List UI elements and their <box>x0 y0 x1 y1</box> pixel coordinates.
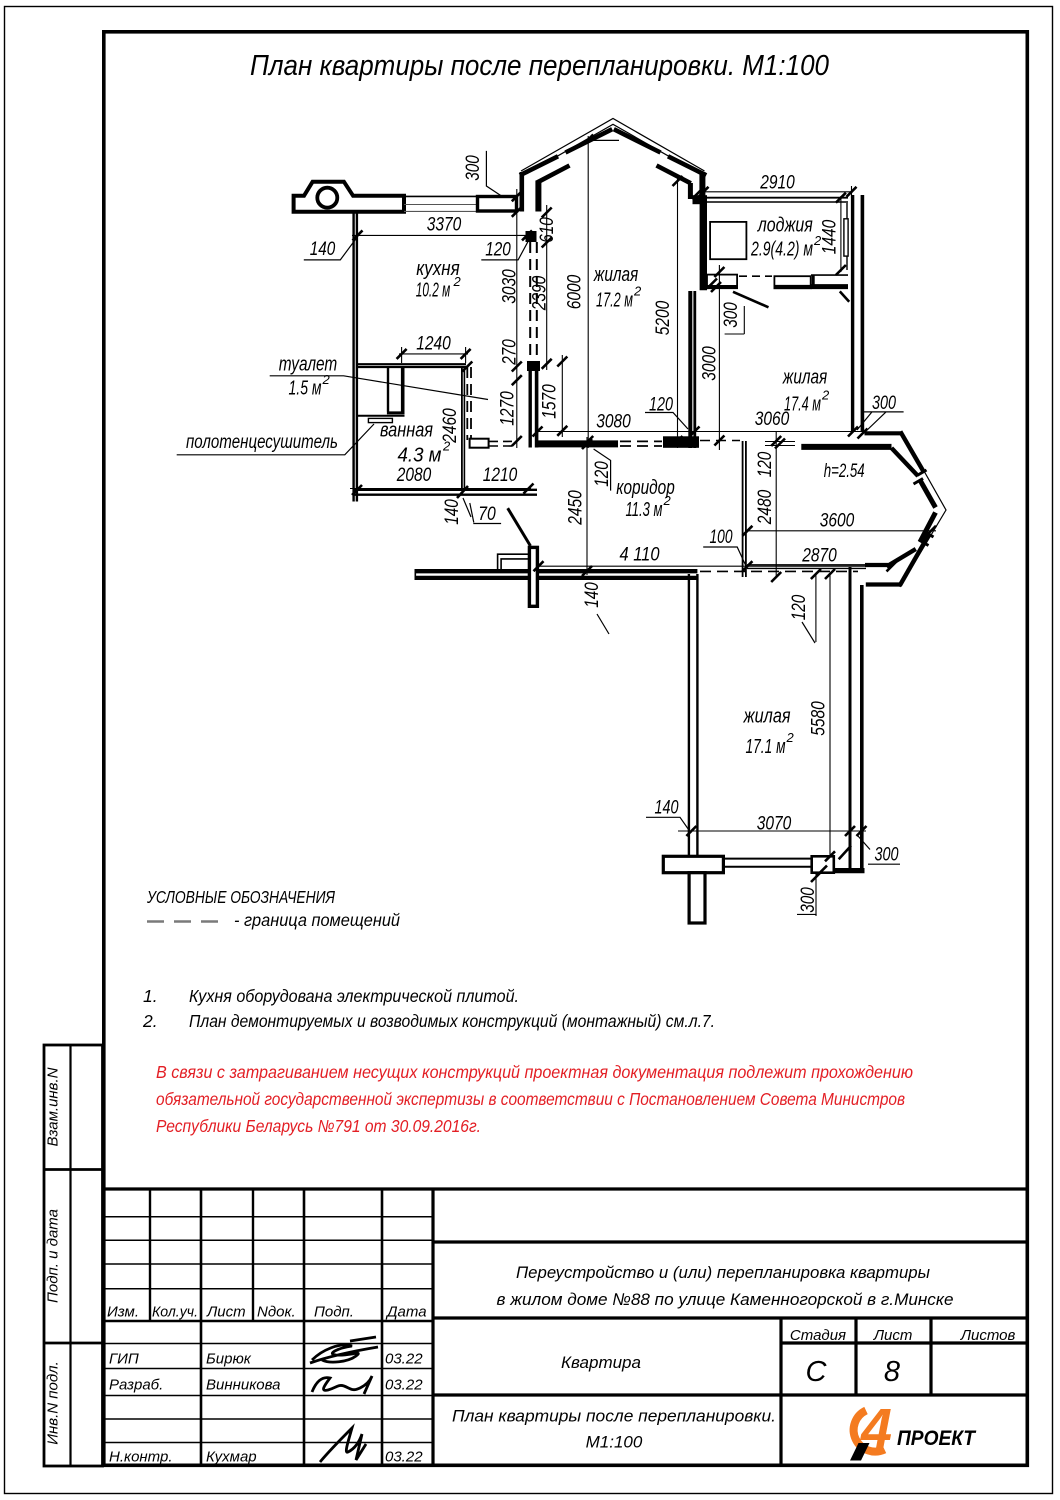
svg-text:2870: 2870 <box>801 546 837 567</box>
svg-text:Квартира: Квартира <box>561 1353 641 1372</box>
svg-text:6000: 6000 <box>565 274 586 309</box>
svg-text:жилая: жилая <box>782 367 828 389</box>
svg-text:С: С <box>806 1356 828 1388</box>
svg-text:140: 140 <box>655 798 679 819</box>
svg-text:1.: 1. <box>143 986 158 1006</box>
svg-text:17.2 м: 17.2 м <box>596 290 633 312</box>
svg-text:Изм.: Изм. <box>107 1304 139 1321</box>
svg-text:жилая: жилая <box>593 264 639 286</box>
svg-text:2: 2 <box>322 372 331 387</box>
svg-text:100: 100 <box>710 527 733 548</box>
svg-text:УСЛОВНЫЕ ОБОЗНАЧЕНИЯ: УСЛОВНЫЕ ОБОЗНАЧЕНИЯ <box>146 887 335 907</box>
svg-text:120: 120 <box>789 594 810 620</box>
svg-text:Лист: Лист <box>206 1304 246 1321</box>
svg-text:жилая: жилая <box>743 706 791 728</box>
svg-text:120: 120 <box>755 451 776 477</box>
svg-text:План квартиры после перепланир: План квартиры после перепланировки. М1:1… <box>250 50 829 82</box>
svg-text:2: 2 <box>663 493 672 508</box>
svg-text:2: 2 <box>442 439 451 454</box>
svg-text:300: 300 <box>875 845 899 866</box>
svg-text:В связи с затрагиванием несущи: В связи с затрагиванием несущих конструк… <box>156 1062 913 1082</box>
svg-text:17.4 м: 17.4 м <box>784 394 821 416</box>
svg-text:2.: 2. <box>142 1011 158 1031</box>
svg-text:Бирюк: Бирюк <box>206 1351 252 1368</box>
svg-text:План демонтируемых и возводимы: План демонтируемых и возводимых конструк… <box>189 1011 715 1031</box>
svg-text:8: 8 <box>884 1356 900 1388</box>
svg-text:2480: 2480 <box>755 489 776 525</box>
svg-text:Взам.инв.N: Взам.инв.N <box>45 1067 62 1146</box>
svg-text:Листов: Листов <box>960 1327 1016 1344</box>
svg-text:2: 2 <box>786 730 795 745</box>
svg-text:Подп.: Подп. <box>314 1304 354 1321</box>
svg-text:3000: 3000 <box>700 346 721 381</box>
svg-text:3030: 3030 <box>500 269 521 304</box>
svg-text:5200: 5200 <box>653 300 674 335</box>
svg-text:2080: 2080 <box>396 465 432 486</box>
svg-text:Винникова: Винникова <box>206 1377 280 1394</box>
svg-text:Инв.N подл.: Инв.N подл. <box>45 1361 62 1445</box>
svg-text:11.3 м: 11.3 м <box>626 499 663 521</box>
svg-text:1570: 1570 <box>540 384 561 419</box>
svg-text:2450: 2450 <box>566 490 587 526</box>
svg-text:03.22: 03.22 <box>385 1449 423 1466</box>
svg-text:ПРОЕКТ: ПРОЕКТ <box>897 1427 977 1450</box>
svg-text:300: 300 <box>872 393 896 414</box>
svg-text:ГИП: ГИП <box>109 1351 139 1368</box>
svg-text:4.3 м: 4.3 м <box>398 445 442 467</box>
svg-text:Nдок.: Nдок. <box>257 1304 296 1321</box>
svg-text:полотенцесушитель: полотенцесушитель <box>186 432 338 453</box>
svg-text:обязательной государственной э: обязательной государственной экспертизы … <box>156 1089 905 1109</box>
svg-text:2: 2 <box>821 388 830 403</box>
svg-text:17.1 м: 17.1 м <box>746 736 786 758</box>
svg-text:140: 140 <box>310 239 336 260</box>
svg-text:1440: 1440 <box>820 219 841 254</box>
svg-text:2390: 2390 <box>530 275 551 311</box>
svg-text:Республики Беларусь №791 от 30: Республики Беларусь №791 от 30.09.2016г. <box>156 1116 481 1136</box>
svg-text:Стадия: Стадия <box>790 1327 846 1344</box>
svg-text:300: 300 <box>721 302 742 328</box>
svg-text:2: 2 <box>633 284 642 299</box>
svg-text:140: 140 <box>582 582 603 608</box>
svg-text:- граница помещений: - граница помещений <box>234 910 400 930</box>
svg-text:70: 70 <box>478 504 496 525</box>
svg-text:ванная: ванная <box>380 420 433 442</box>
svg-text:в жилом доме №88 по улице Каме: в жилом доме №88 по улице Каменногорской… <box>497 1290 954 1309</box>
svg-text:2910: 2910 <box>759 172 795 193</box>
svg-text:120: 120 <box>592 461 613 487</box>
svg-text:270: 270 <box>500 339 521 366</box>
svg-text:03.22: 03.22 <box>385 1377 423 1394</box>
svg-text:10.2 м: 10.2 м <box>416 280 451 302</box>
svg-text:5580: 5580 <box>809 701 830 736</box>
svg-text:2: 2 <box>813 233 822 248</box>
svg-text:2: 2 <box>453 274 462 289</box>
svg-text:1.5 м: 1.5 м <box>289 378 322 400</box>
svg-text:2.9(4.2) м: 2.9(4.2) м <box>750 239 813 261</box>
svg-text:1240: 1240 <box>416 334 451 355</box>
svg-text:План квартиры после перепланир: План квартиры после перепланировки. <box>452 1407 776 1426</box>
svg-text:120: 120 <box>485 240 511 261</box>
svg-text:h=2.54: h=2.54 <box>824 461 865 482</box>
svg-text:Кол.уч.: Кол.уч. <box>152 1304 198 1321</box>
svg-text:4 110: 4 110 <box>620 545 660 566</box>
svg-text:3370: 3370 <box>427 215 462 236</box>
svg-text:300: 300 <box>463 155 484 181</box>
svg-text:Дата: Дата <box>385 1304 427 1321</box>
svg-text:М1:100: М1:100 <box>586 1433 643 1452</box>
svg-text:3600: 3600 <box>820 511 855 532</box>
svg-text:3070: 3070 <box>757 814 792 835</box>
svg-text:Подп. и дата: Подп. и дата <box>45 1209 62 1303</box>
svg-text:140: 140 <box>442 499 463 525</box>
svg-text:Кухня оборудована электрическо: Кухня оборудована электрической плитой. <box>189 986 519 1006</box>
svg-text:3080: 3080 <box>596 412 631 433</box>
svg-text:1270: 1270 <box>498 391 519 426</box>
svg-text:120: 120 <box>649 395 673 416</box>
svg-text:300: 300 <box>798 887 819 913</box>
svg-text:03.22: 03.22 <box>385 1351 423 1368</box>
svg-text:Разраб.: Разраб. <box>109 1377 163 1394</box>
svg-text:Кухмар: Кухмар <box>206 1449 257 1466</box>
svg-text:1210: 1210 <box>483 465 518 486</box>
svg-text:лоджия: лоджия <box>757 215 813 237</box>
svg-text:Лист: Лист <box>873 1327 913 1344</box>
svg-text:610: 610 <box>537 217 558 243</box>
svg-text:Н.контр.: Н.контр. <box>109 1449 173 1466</box>
svg-text:Переустройство и (или) перепла: Переустройство и (или) перепланировка кв… <box>516 1263 930 1282</box>
